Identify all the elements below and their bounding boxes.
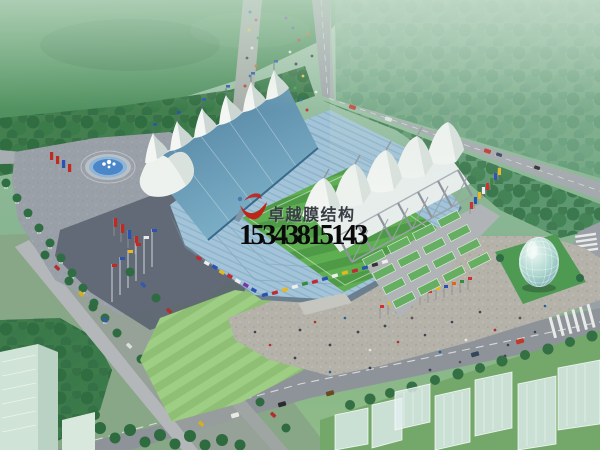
stadium-aerial-rendering: 卓越膜结构 15343815143 <box>0 0 600 450</box>
glass-egg-dome <box>519 237 559 287</box>
rendering-scene <box>0 0 600 450</box>
